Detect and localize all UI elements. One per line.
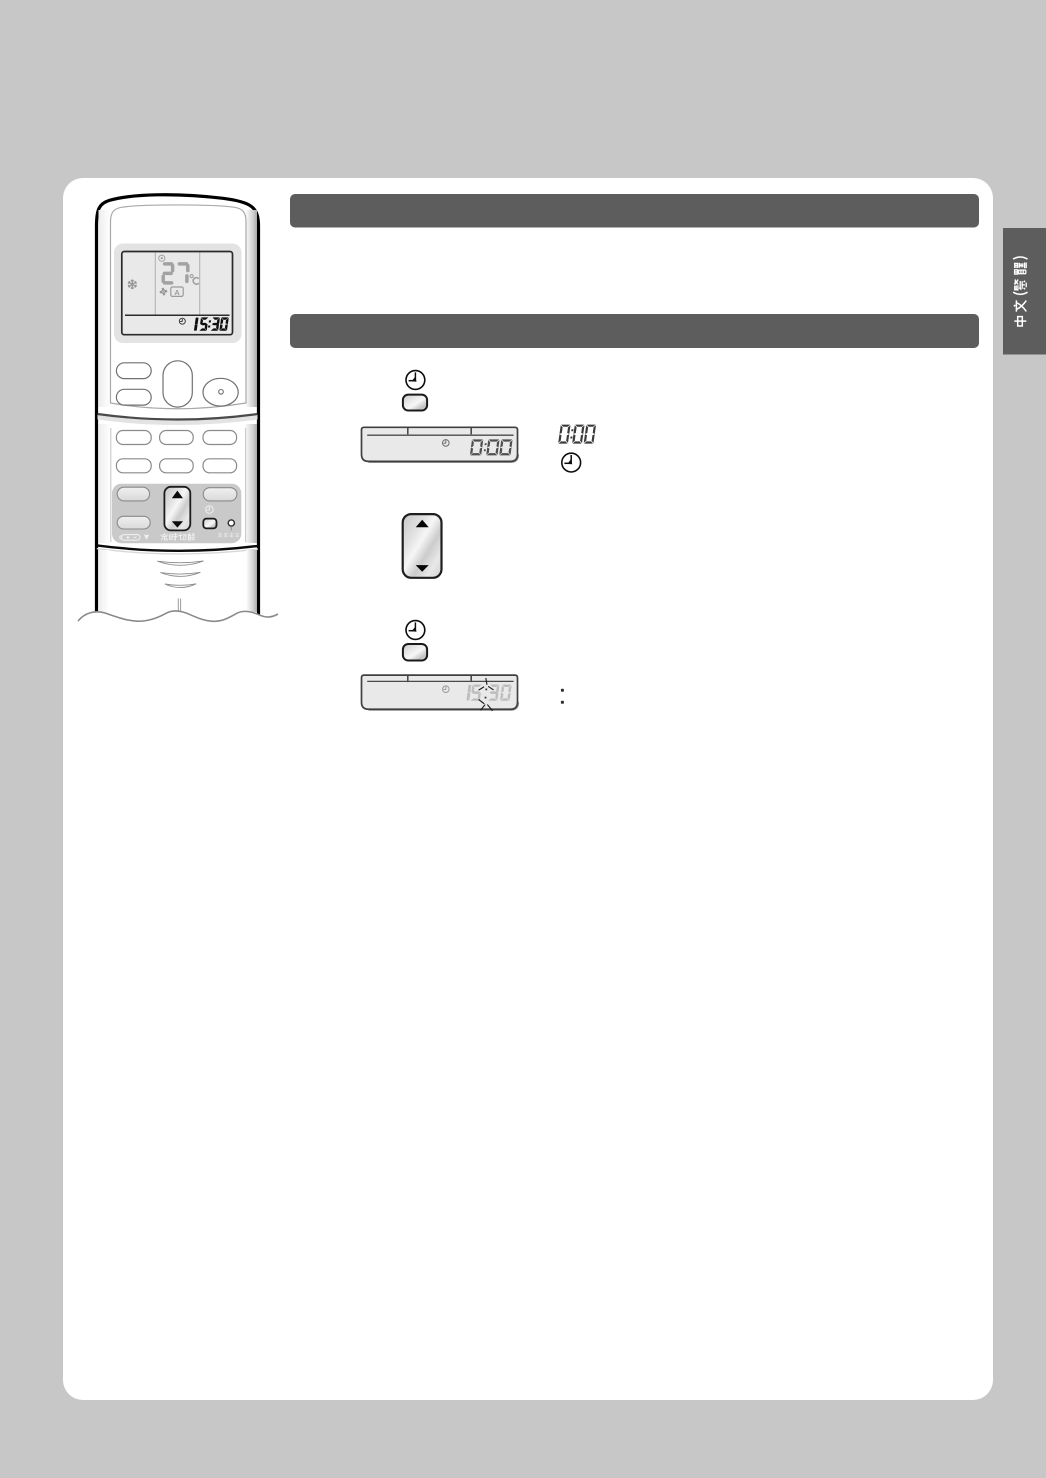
svg-text:A: A <box>174 288 180 297</box>
